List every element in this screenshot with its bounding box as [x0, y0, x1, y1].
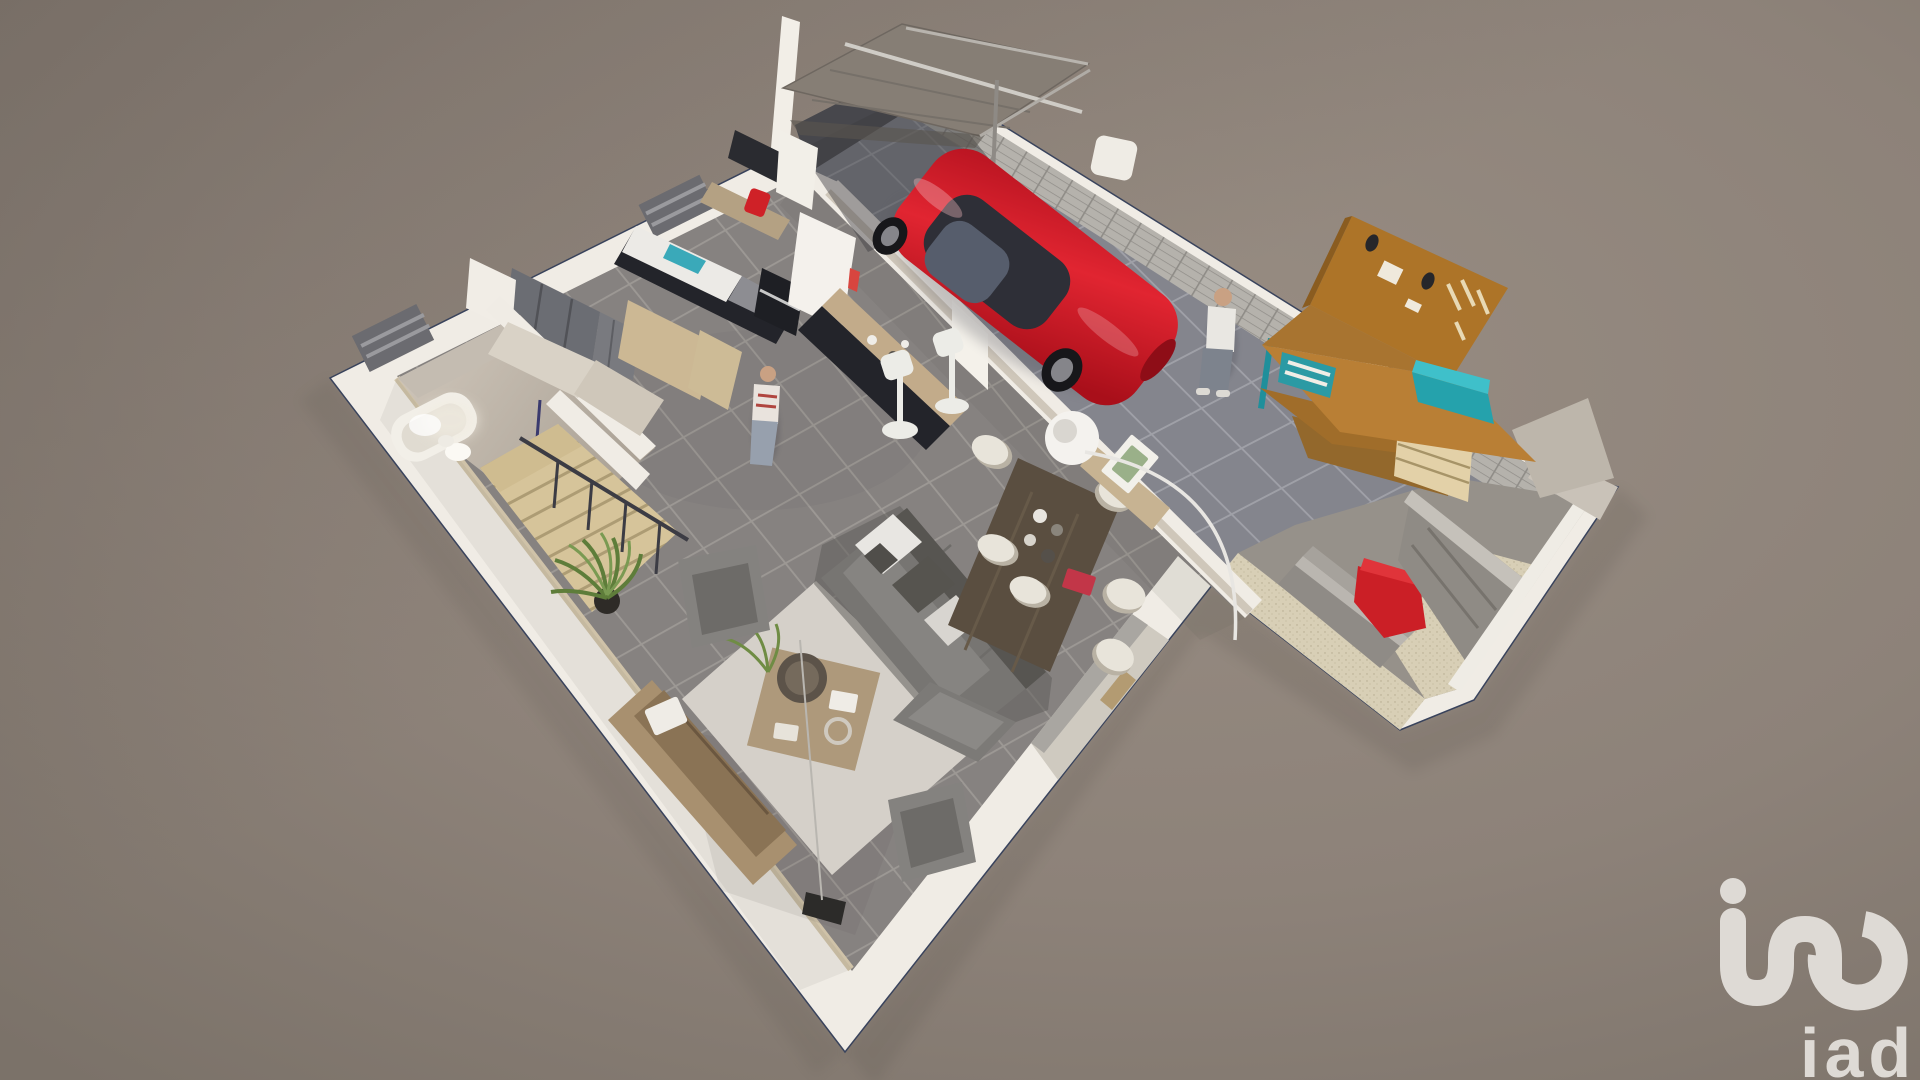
svg-text:iad: iad: [1800, 1014, 1916, 1080]
